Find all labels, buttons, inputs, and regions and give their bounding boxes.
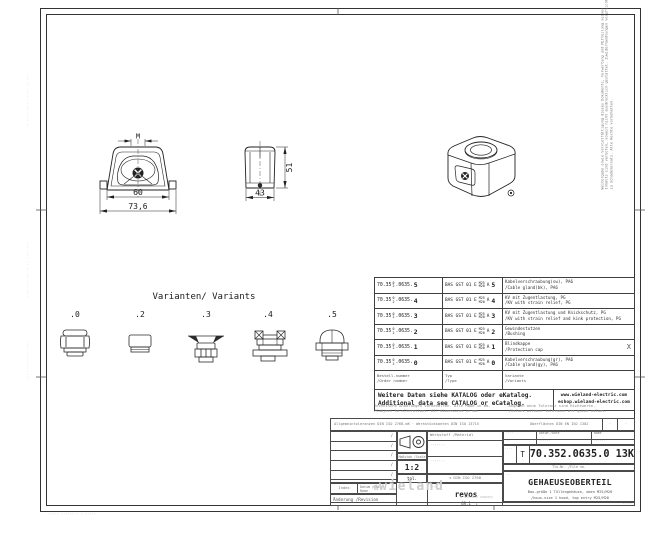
variant-label-5: .5 <box>327 310 337 319</box>
revision-row: / <box>331 442 396 452</box>
description-cell: KV mit Zugentlastung, PG/KV with strain … <box>503 294 634 309</box>
type-code-cell: BAS GST 01 EM25M20A5 <box>443 278 503 293</box>
type-code-cell: BAS GST 01 EM25M20A0 <box>443 356 503 371</box>
table-row: 70.3502.0635.4 BAS GST 01 EM25M20A4 KV m… <box>375 294 634 310</box>
table-row: 70.3502.0635.1 BAS GST 01 EM25M20A1 Blin… <box>375 340 634 356</box>
variant-3-gland-icon <box>188 336 224 362</box>
drawing-title: GEHAEUSEOBERTEIL <box>504 476 635 488</box>
description-cell: KV mit Zugentlastung und Knickschutz, PG… <box>503 309 634 324</box>
part-number-cell: 70.3502.0635.3 <box>375 309 443 324</box>
part-number-cell: 70.3502.0635.0 <box>375 356 443 371</box>
meta-cells: ···· Datum /Date Name ·· ······ ······ <box>503 431 635 445</box>
fineprint-line: /Values without tolerance are guide valu… <box>509 409 636 414</box>
wieland-tagline: a wieland company <box>373 495 493 499</box>
part-number-cell: 70.3502.0635.2 <box>375 325 443 340</box>
projection-symbol-box <box>397 431 427 453</box>
variant-label-2: .2 <box>135 310 145 319</box>
type-code-cell: BAS GST 01 EM25M20A4 <box>443 294 503 309</box>
dim-60-label: 60 <box>133 188 143 197</box>
website-url[interactable]: www.wieland-electric.com <box>554 393 634 400</box>
doc-type-letter: T <box>517 446 530 463</box>
material-cell: Werkstoff /Material ······· ······· <box>427 431 503 474</box>
row-flag: X <box>627 343 631 351</box>
variant-0-gland-icon <box>61 330 90 356</box>
dim-736-label: 73,6 <box>128 202 147 211</box>
type-code-cell: BAS GST 01 EM25M20A2 <box>443 325 503 340</box>
edge-note-left-2: ···· ··· ····· ·· ···· ··· <box>26 232 30 298</box>
table-row: 70.3502.0635.0 BAS GST 01 EM25M20A0 Kabe… <box>375 356 634 372</box>
meta-blank: ···· <box>504 432 537 439</box>
material-value: ······· <box>428 441 502 457</box>
copyright-note: Weitergabe sowie Vervielfältigung dieses… <box>601 52 614 190</box>
drawing-number: 70.352.0635.0 13K <box>530 446 634 463</box>
table-legend-row: Bestell-nummer/Order number Typ/Type Var… <box>375 371 634 390</box>
general-tolerance-note: Allgemeintoleranzen DIN ISO 2768-mK · We… <box>331 422 530 426</box>
variants-table: 70.3502.0635.5 BAS GST 01 EM25M20A5 Kabe… <box>374 277 635 411</box>
variant-label-0: .0 <box>70 310 80 319</box>
part-number-cell: 70.3502.0635.1 <box>375 340 443 355</box>
title-cell: ··· GEHAEUSEOBERTEIL Bau.größe 1 Tülleng… <box>503 471 635 502</box>
type-code-cell: BAS GST 01 EM25M20A3 <box>443 309 503 324</box>
type-code-cell: BAS GST 01 EM25M20A1 <box>443 340 503 355</box>
description-cell: Kabelverschraubung(sw), PA6/Cable gland(… <box>503 278 634 293</box>
side-view: 43 51 <box>245 141 294 201</box>
legend-variant: Variante/Variants <box>503 371 634 389</box>
meta-date-header: Datum /Date <box>537 432 592 439</box>
top-strip-box-b: · <box>617 418 634 431</box>
revision-row: / <box>331 461 396 471</box>
part-mid: .0635. <box>395 283 412 288</box>
variant-2-gland-icon <box>129 335 151 352</box>
fineprint-line: /Subject to alterations. All dimensions … <box>374 409 501 414</box>
description-cell: Blindkappe/Protection cap <box>503 340 634 355</box>
variants-section: Varianten/ Variants .0 .2 .3 .4 .5 <box>61 292 349 362</box>
titleblock-bottom-strip: 1 ····· <box>330 502 635 506</box>
meta-name-header: Name <box>592 432 634 439</box>
variants-title: Varianten/ Variants <box>153 292 256 302</box>
table-row: 70.3502.0635.3 BAS GST 01 EM25M20A3 KV m… <box>375 309 634 325</box>
drawing-subtitle-en: /hous.size 1 hood, top entry M25/M20 <box>504 495 635 501</box>
doc-mini-cell: ···· <box>504 446 517 463</box>
wieland-logo-text: wieland <box>379 479 444 494</box>
edge-note-left-3: ··· ····· ··· ···· <box>26 330 30 380</box>
description-cell: Gewindestutzen/Bushing <box>503 325 634 340</box>
variant-label-3: .3 <box>201 310 211 319</box>
corner-note: ····· <box>622 502 634 506</box>
material-value: ······· <box>428 457 502 465</box>
screw-icon <box>461 172 469 180</box>
footer-note: ····· ········ · ····· <box>48 512 96 516</box>
legend-type: Typ/Type <box>443 371 503 389</box>
sheet-mark: 1 <box>476 502 478 506</box>
table-row: 70.3502.0635.5 BAS GST 01 EM25M20A5 Kabe… <box>375 278 634 294</box>
material-label: Werkstoff /Material <box>428 432 502 441</box>
scale-label: Maßstab /Scale <box>397 453 427 460</box>
dim-thread-label: M <box>136 133 140 141</box>
index-label: Index <box>331 484 358 493</box>
legend-order-number: Bestell-nummer/Order number <box>375 371 443 389</box>
wieland-watermark: ✿wieland a wieland company <box>373 475 493 499</box>
table-fineprint: Technische Änderungen vorbehalten. Alle … <box>374 404 635 413</box>
part-number-cell: 70.3502.0635.5 <box>375 278 443 293</box>
edge-note-left-1: ·· ···· ····· ···· ·· ··· <box>26 68 30 128</box>
revision-row: / <box>331 451 396 461</box>
front-view: M 60 73,6 <box>100 133 176 215</box>
dim-43-label: 43 <box>255 189 265 198</box>
scale-value: 1:2 <box>397 460 427 474</box>
variant-label-4: .4 <box>263 310 273 319</box>
part-number-cell: 70.3502.0635.4 <box>375 294 443 309</box>
drawing-sheet: M 60 73,6 43 51 <box>0 0 650 560</box>
variant-4-gland-icon <box>253 331 287 361</box>
revision-row: / <box>331 432 396 442</box>
copyright-line: zu Schadenersatz. Alle Rechte vorbehalte… <box>609 52 613 190</box>
table-row: 70.3502.0635.2 BAS GST 01 EM25M20A2 Gewi… <box>375 325 634 341</box>
part-number-row: ···· T 70.352.0635.0 13K <box>503 445 635 464</box>
variant-5-gland-icon <box>316 330 348 360</box>
part-prefix: 70.35 <box>377 283 391 288</box>
description-cell: Kabelverschraubung(gr), PA6/Cable gland(… <box>503 356 634 371</box>
surface-note: Oberflächen DIN EN ISO 1302 <box>530 422 602 426</box>
file-note-row: Tln-Nr. /File no. <box>503 464 635 471</box>
dim-51-label: 51 <box>285 163 294 173</box>
top-strip-box-a: · <box>602 418 617 431</box>
isometric-view <box>448 137 515 197</box>
first-angle-projection-icon <box>398 433 426 451</box>
titleblock-top-strip: Allgemeintoleranzen DIN ISO 2768-mK · We… <box>330 418 635 431</box>
title-block: Allgemeintoleranzen DIN ISO 2768-mK · We… <box>330 418 635 506</box>
